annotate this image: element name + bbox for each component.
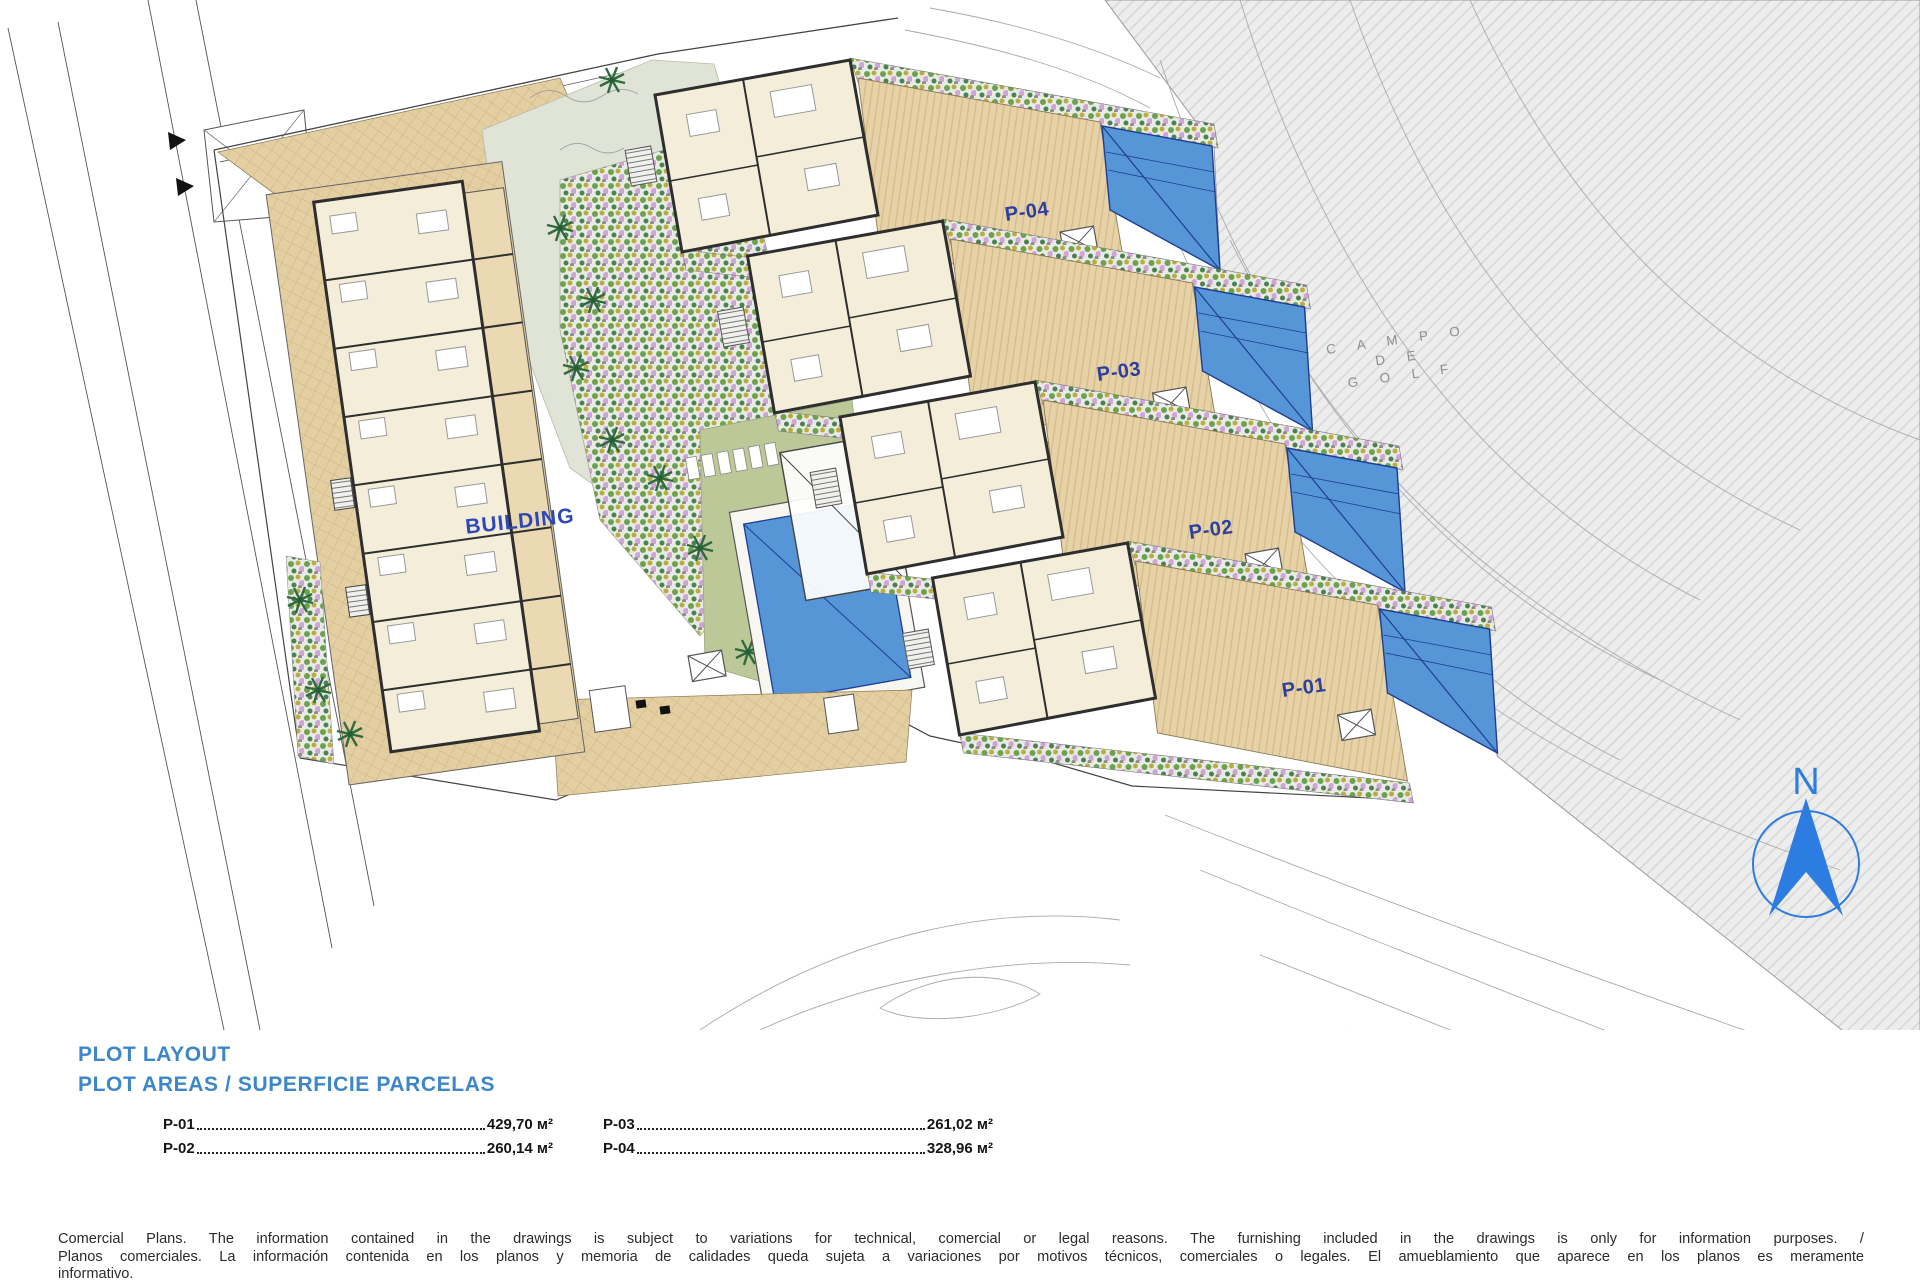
plot-area-label: P-01 [163, 1116, 195, 1133]
dotted-leader [197, 1128, 485, 1130]
plot-area-label: P-04 [603, 1140, 635, 1157]
site-plan-sheet: C A M P O D E G O L F [0, 0, 1920, 1280]
plot-area-label: P-02 [163, 1140, 195, 1157]
disclaimer-line-3: informativo. [58, 1266, 1864, 1280]
plot-area-label: P-03 [603, 1116, 635, 1133]
legend-title-line2: PLOT AREAS / SUPERFICIE PARCELAS [78, 1070, 993, 1100]
plot-areas-list: P-01 429,70 м² P-03 261,02 м² P-02 260,1… [163, 1116, 993, 1157]
dotted-leader [637, 1152, 925, 1154]
compass-letter: N [1792, 761, 1819, 803]
plot-area-value: 260,14 м² [487, 1140, 553, 1157]
disclaimer: Comercial Plans. The information contain… [58, 1231, 1864, 1280]
dotted-leader [197, 1152, 485, 1154]
plot-area-value: 429,70 м² [487, 1116, 553, 1133]
plot-area-row-p01: P-01 429,70 м² [163, 1116, 553, 1133]
legend: PLOT LAYOUT PLOT AREAS / SUPERFICIE PARC… [78, 1040, 993, 1157]
plot-area-row-p04: P-04 328,96 м² [603, 1140, 993, 1157]
legend-title-line1: PLOT LAYOUT [78, 1040, 993, 1070]
disclaimer-line-es: Planos comerciales. La información conte… [58, 1249, 1864, 1267]
plot-area-row-p02: P-02 260,14 м² [163, 1140, 553, 1157]
plot-area-row-p03: P-03 261,02 м² [603, 1116, 993, 1133]
plot-area-value: 261,02 м² [927, 1116, 993, 1133]
site-plan-drawing: C A M P O D E G O L F [0, 0, 1920, 1030]
dotted-leader [637, 1128, 925, 1130]
plot-area-value: 328,96 м² [927, 1140, 993, 1157]
disclaimer-line-en: Comercial Plans. The information contain… [58, 1231, 1864, 1249]
